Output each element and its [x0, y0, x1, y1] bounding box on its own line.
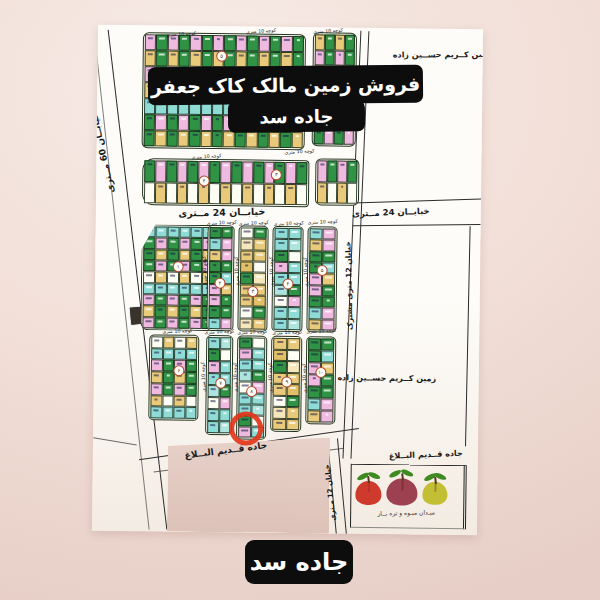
plot-cell: [320, 398, 333, 410]
plot-cell: [143, 294, 155, 305]
plot-cell: [252, 338, 265, 349]
plot-cell: [155, 238, 167, 249]
plot-cell: [210, 227, 222, 238]
plot-cell: [167, 283, 179, 294]
plot-cell: [288, 239, 302, 250]
plot-cell: [186, 337, 198, 349]
plot-cell: [345, 50, 355, 66]
plot-cell: [143, 260, 155, 271]
block-number-badge: ۴: [199, 175, 210, 186]
plot-cell: [155, 294, 167, 305]
plot-cell: [242, 183, 253, 205]
plot-cell: [234, 131, 246, 147]
plot-cell: [252, 349, 265, 360]
plot-cell: [166, 182, 177, 204]
plot-cell: [156, 50, 168, 66]
plot-cell: [240, 295, 253, 307]
plot-cell: [190, 306, 202, 317]
plot-cell: [253, 183, 264, 205]
fruit-market-box: [350, 464, 467, 529]
plot-cell: [315, 34, 325, 50]
plot-cell: [202, 35, 214, 51]
plot-cell: [270, 36, 282, 52]
plot-cell: [167, 238, 179, 249]
plot-block: [306, 226, 337, 332]
plot-cell: [242, 161, 253, 183]
plot-cell: [144, 130, 156, 146]
street-24-center-label: خیابــان 24 مــتری: [178, 206, 265, 219]
plot-cell: [285, 183, 296, 205]
stem-icon: [367, 476, 370, 483]
plot-cell: [151, 383, 163, 395]
alley-label: کوچه 10 متری: [302, 257, 309, 287]
plot-cell: [178, 306, 190, 317]
plot-block: [305, 336, 336, 424]
plot-cell: [286, 418, 300, 430]
plot-cell: [163, 348, 175, 360]
plot-cell: [247, 51, 259, 67]
plot-cell: [154, 317, 166, 328]
plot-cell: [185, 407, 197, 419]
plot-cell: [274, 296, 288, 308]
plot-cell: [309, 308, 322, 319]
plot-cell: [151, 371, 163, 383]
plot-cell: [308, 386, 321, 398]
plot-cell: [155, 260, 167, 271]
plot-cell: [155, 114, 167, 130]
plot-cell: [287, 338, 301, 350]
plot-cell: [285, 162, 296, 184]
plot-cell: [209, 161, 220, 183]
plot-cell: [345, 35, 355, 51]
plot-cell: [286, 395, 300, 407]
plot-cell: [150, 395, 162, 407]
block-number-badge: ۱: [173, 261, 184, 272]
plot-cell: [309, 251, 322, 262]
plot-cell: [219, 409, 231, 421]
plot-cell: [177, 182, 188, 204]
plot-cell: [179, 238, 191, 249]
plot-cell: [179, 227, 191, 238]
plot-cell: [155, 160, 166, 182]
plot-cell: [179, 249, 191, 260]
plot-cell: [185, 372, 197, 384]
owner-parcel-top-label: ـین کــریم حســین زاده: [393, 50, 483, 59]
alley-label: کوچه 10 متری: [231, 362, 238, 392]
plot-cell: [220, 337, 232, 349]
plot-cell: [273, 361, 287, 373]
plot-cell: [201, 115, 213, 131]
block-number-badge: ۴: [282, 278, 293, 289]
plot-cell: [296, 162, 307, 184]
plot-cell: [155, 249, 167, 260]
alley-label: کوچه 10 متری: [272, 329, 302, 336]
plot-cell: [307, 398, 320, 410]
plot-cell: [274, 239, 288, 250]
plot-cell: [209, 238, 221, 249]
plot-cell: [287, 349, 301, 361]
plot-cell: [145, 34, 157, 50]
plot-cell: [143, 249, 155, 260]
plot-cell: [325, 50, 335, 66]
plot-cell: [239, 360, 252, 371]
plot-cell: [144, 114, 156, 130]
plot-cell: [162, 395, 174, 407]
plot-cell: [220, 161, 231, 183]
stem-icon: [434, 477, 437, 484]
plot-cell: [272, 395, 286, 407]
plot-cell: [224, 35, 236, 51]
block-number-badge: ۲: [214, 278, 225, 289]
top-banner-line1: فروش زمین مالک کاک جعفر دانا: [148, 65, 423, 106]
plot-block: [148, 334, 199, 421]
plot-cell: [335, 50, 345, 66]
plot-cell: [240, 307, 253, 318]
plot-cell: [174, 383, 186, 395]
plot-cell: [220, 183, 231, 205]
plot-cell: [144, 182, 155, 204]
plot-cell: [163, 336, 175, 348]
alley-label: کوچه 10 متری: [284, 147, 314, 154]
old-road-right-label: جاده قــدیم البــلاغ: [389, 449, 463, 461]
plot-cell: [190, 51, 202, 67]
plot-cell: [347, 161, 357, 183]
plot-cell: [143, 272, 155, 283]
plot-cell: [179, 272, 191, 283]
plot-cell: [151, 360, 163, 372]
plot-cell: [321, 338, 334, 350]
fruit-market-label: میـدان میـوه و تره بــار: [377, 508, 435, 516]
block-number-badge: ۵: [216, 51, 227, 62]
alley-label: کوچه 10 متری: [207, 219, 237, 226]
yellow-apple-icon: [422, 482, 447, 505]
plot-cell: [187, 182, 198, 204]
plot-cell: [212, 115, 224, 131]
plot-cell: [190, 283, 202, 294]
alley-label: کوچه 10 متری: [268, 257, 275, 287]
plot-cell: [253, 273, 266, 284]
plot-cell: [235, 51, 247, 67]
plot-cell: [143, 238, 155, 249]
alley-label: کوچه 10 متری: [233, 256, 240, 286]
plot-cell: [178, 131, 190, 147]
plot-cell: [213, 35, 225, 51]
branch-road-edge: [93, 437, 137, 445]
plot-cell: [220, 349, 232, 361]
stem-icon: [401, 473, 404, 480]
plot-cell: [239, 371, 252, 382]
block-number-badge: ۹: [281, 376, 292, 387]
plot-cell: [220, 307, 232, 318]
red-apple-icon: [355, 481, 381, 505]
block-number-badge: ۷: [215, 378, 226, 389]
plot-cell: [174, 348, 186, 360]
alley-label: کوچه 10 متری: [300, 363, 307, 393]
plot-block: [315, 158, 360, 206]
block-number-badge: ۳: [271, 169, 282, 180]
plot-cell: [145, 50, 157, 66]
plot-cell: [231, 161, 242, 183]
plot-cell: [151, 348, 163, 360]
plot-cell: [315, 50, 325, 66]
alley-label: کوچه 10 متری: [199, 362, 206, 392]
plot-cell: [274, 183, 285, 205]
plot-cell: [253, 262, 266, 274]
street-24-right-lower-edge: [353, 224, 481, 226]
plot-cell: [155, 226, 167, 237]
plot-cell: [167, 249, 179, 260]
plot-cell: [309, 285, 322, 296]
plot-cell: [167, 115, 179, 131]
plot-cell: [209, 250, 221, 261]
plot-cell: [321, 350, 334, 362]
street-24-right-upper-edge: [353, 199, 481, 204]
plot-cell: [327, 160, 337, 182]
plot-cell: [327, 182, 337, 204]
plot-cell: [321, 386, 334, 398]
plot-cell: [239, 349, 252, 360]
plot-cell: [162, 372, 174, 384]
plot-cell: [190, 35, 202, 51]
plot-cell: [240, 261, 253, 273]
plot-cell: [189, 131, 201, 147]
plot-cell: [272, 418, 286, 430]
plot-cell: [273, 338, 287, 350]
plot-cell: [296, 184, 307, 206]
plot-cell: [191, 238, 203, 249]
owner-parcel-mid-label: زمین کــریم حســین زاده: [337, 373, 436, 383]
plot-cell: [155, 130, 167, 146]
plot-cell: [292, 36, 304, 52]
plot-cell: [257, 132, 269, 148]
plot-cell: [155, 283, 167, 294]
parcel-right-edge: [465, 226, 471, 446]
plot-cell: [273, 318, 287, 329]
plot-cell: [246, 131, 258, 147]
plot-cell: [207, 397, 219, 409]
plot-cell: [274, 228, 288, 239]
plot-cell: [208, 349, 220, 361]
plot-cell: [287, 307, 301, 318]
plot-cell: [162, 383, 174, 395]
alley-label: کوچه 10 متری: [308, 218, 338, 225]
plot-cell: [173, 407, 185, 419]
plot-cell: [207, 409, 219, 421]
plot-cell: [179, 51, 191, 67]
top-banner-line2: جاده سد: [228, 100, 365, 132]
plot-cell: [322, 240, 335, 251]
plot-cell: [288, 251, 302, 262]
plot-cell: [166, 161, 177, 183]
plot-cell: [231, 183, 242, 205]
plot-cell: [209, 183, 220, 205]
plot-cell: [240, 273, 253, 284]
plot-cell: [166, 306, 178, 317]
alley-label: کوچه 10 متری: [162, 327, 192, 334]
block-number-badge: ۵: [317, 265, 328, 276]
plot-cell: [185, 384, 197, 396]
plot-cell: [144, 226, 156, 237]
plot-cell: [151, 336, 163, 348]
plot-cell: [309, 296, 322, 308]
plot-cell: [240, 250, 253, 261]
plot-cell: [317, 182, 327, 204]
alley-label: کوچه 10 متری: [239, 219, 269, 226]
plot-cell: [167, 227, 179, 238]
plot-cell: [325, 34, 335, 50]
street-24-right-label: خیابــان 24 مــتری: [352, 206, 430, 219]
plot-cell: [143, 283, 155, 294]
plot-cell: [240, 239, 253, 250]
block-number-badge: ۸: [246, 386, 257, 397]
plot-cell: [185, 360, 197, 372]
plot-cell: [322, 296, 335, 308]
plot-cell: [287, 296, 301, 308]
plot-cell: [286, 361, 300, 373]
plot-cell: [337, 161, 347, 183]
plot-cell: [322, 285, 335, 296]
plot-cell: [178, 295, 190, 306]
plot-cell: [286, 407, 300, 419]
plot-cell: [162, 360, 174, 372]
plot-cell: [189, 115, 201, 131]
alley-label: کوچه 10 متری: [201, 256, 208, 286]
plot-cell: [317, 160, 327, 182]
plot-cell: [308, 350, 321, 362]
plot-cell: [322, 228, 335, 239]
plot-cell: [143, 306, 155, 317]
plot-cell: [223, 131, 235, 147]
plot-cell: [144, 160, 155, 182]
plot-block: [142, 158, 310, 207]
plot-cell: [253, 307, 266, 318]
plot-cell: [154, 306, 166, 317]
plot-cell: [190, 295, 202, 306]
plot-cell: [208, 337, 220, 349]
plot-cell: [309, 240, 322, 251]
plot-cell: [188, 161, 199, 183]
alley-label: کوچه 10 متری: [306, 327, 336, 334]
block-number-badge: ۱۰: [315, 367, 326, 378]
plot-cell: [142, 317, 154, 328]
plot-cell: [167, 51, 179, 67]
plot-cell: [239, 337, 252, 348]
plot-cell: [178, 115, 190, 131]
leaf-icon: [388, 469, 402, 479]
plot-cell: [185, 395, 197, 407]
plot-cell: [209, 261, 221, 272]
plot-cell: [247, 35, 259, 51]
plot-cell: [322, 251, 335, 262]
maroon-apple-icon: [386, 478, 417, 505]
plot-cell: [308, 338, 321, 350]
plot-cell: [273, 349, 287, 361]
plot-cell: [335, 35, 345, 51]
plot-cell: [288, 262, 302, 274]
plot-cell: [309, 228, 322, 239]
plot-cell: [177, 161, 188, 183]
plot-cell: [221, 239, 233, 250]
plot-cell: [281, 36, 293, 52]
plot-cell: [253, 250, 266, 261]
plot-cell: [155, 272, 167, 283]
plot-cell: [179, 35, 191, 51]
plot-cell: [241, 227, 254, 238]
plot-cell: [186, 348, 198, 360]
plot-cell: [252, 360, 265, 371]
plot-cell: [274, 262, 288, 274]
plot-cell: [274, 307, 288, 318]
plot-cell: [208, 361, 220, 373]
plot-cell: [173, 395, 185, 407]
plot-cell: [263, 183, 274, 205]
plot-cell: [322, 308, 335, 319]
plot-cell: [200, 131, 212, 147]
plot-cell: [219, 361, 231, 373]
plot-cell: [174, 337, 186, 349]
block-number-badge: ۶: [173, 365, 184, 376]
plot-cell: [150, 407, 162, 419]
plot-cell: [212, 131, 224, 147]
plot-cell: [209, 306, 221, 317]
plot-cell: [166, 295, 178, 306]
plot-cell: [167, 272, 179, 283]
plot-cell: [219, 397, 231, 409]
plot-block: [237, 225, 268, 331]
plot-cell: [320, 410, 333, 422]
plot-cell: [274, 250, 288, 261]
plot-cell: [288, 228, 302, 239]
plot-cell: [236, 35, 248, 51]
plot-cell: [155, 182, 166, 204]
plot-cell: [201, 51, 213, 67]
plot-cell: [221, 261, 233, 272]
plot-cell: [178, 283, 190, 294]
plot-cell: [253, 239, 266, 250]
alley-label: کوچه 10 متری: [204, 328, 234, 335]
plot-cell: [253, 228, 266, 239]
plot-cell: [253, 296, 266, 308]
plot-cell: [258, 36, 270, 52]
plot-cell: [207, 421, 219, 433]
plot-cell: [221, 227, 233, 238]
alley-label: کوچه 10 متری: [266, 363, 273, 393]
plot-cell: [307, 410, 320, 422]
block-number-badge: ۳: [247, 286, 258, 297]
plot-cell: [209, 295, 221, 306]
bottom-banner: جاده سد: [245, 540, 353, 584]
plot-cell: [220, 295, 232, 306]
plot-cell: [162, 407, 174, 419]
alley-label: کوچه 10 متری: [274, 220, 304, 227]
plot-cell: [166, 131, 178, 147]
plot-cell: [337, 182, 347, 204]
plot-cell: [253, 162, 264, 184]
plot-cell: [347, 182, 357, 204]
plot-cell: [221, 250, 233, 261]
plot-cell: [272, 407, 286, 419]
plot-cell: [252, 371, 265, 382]
plot-cell: [191, 227, 203, 238]
alley-label: کوچه 10 متری: [237, 328, 267, 335]
photo-post: { "banner_top": {"line1": "فروش زمین مال…: [0, 0, 600, 600]
